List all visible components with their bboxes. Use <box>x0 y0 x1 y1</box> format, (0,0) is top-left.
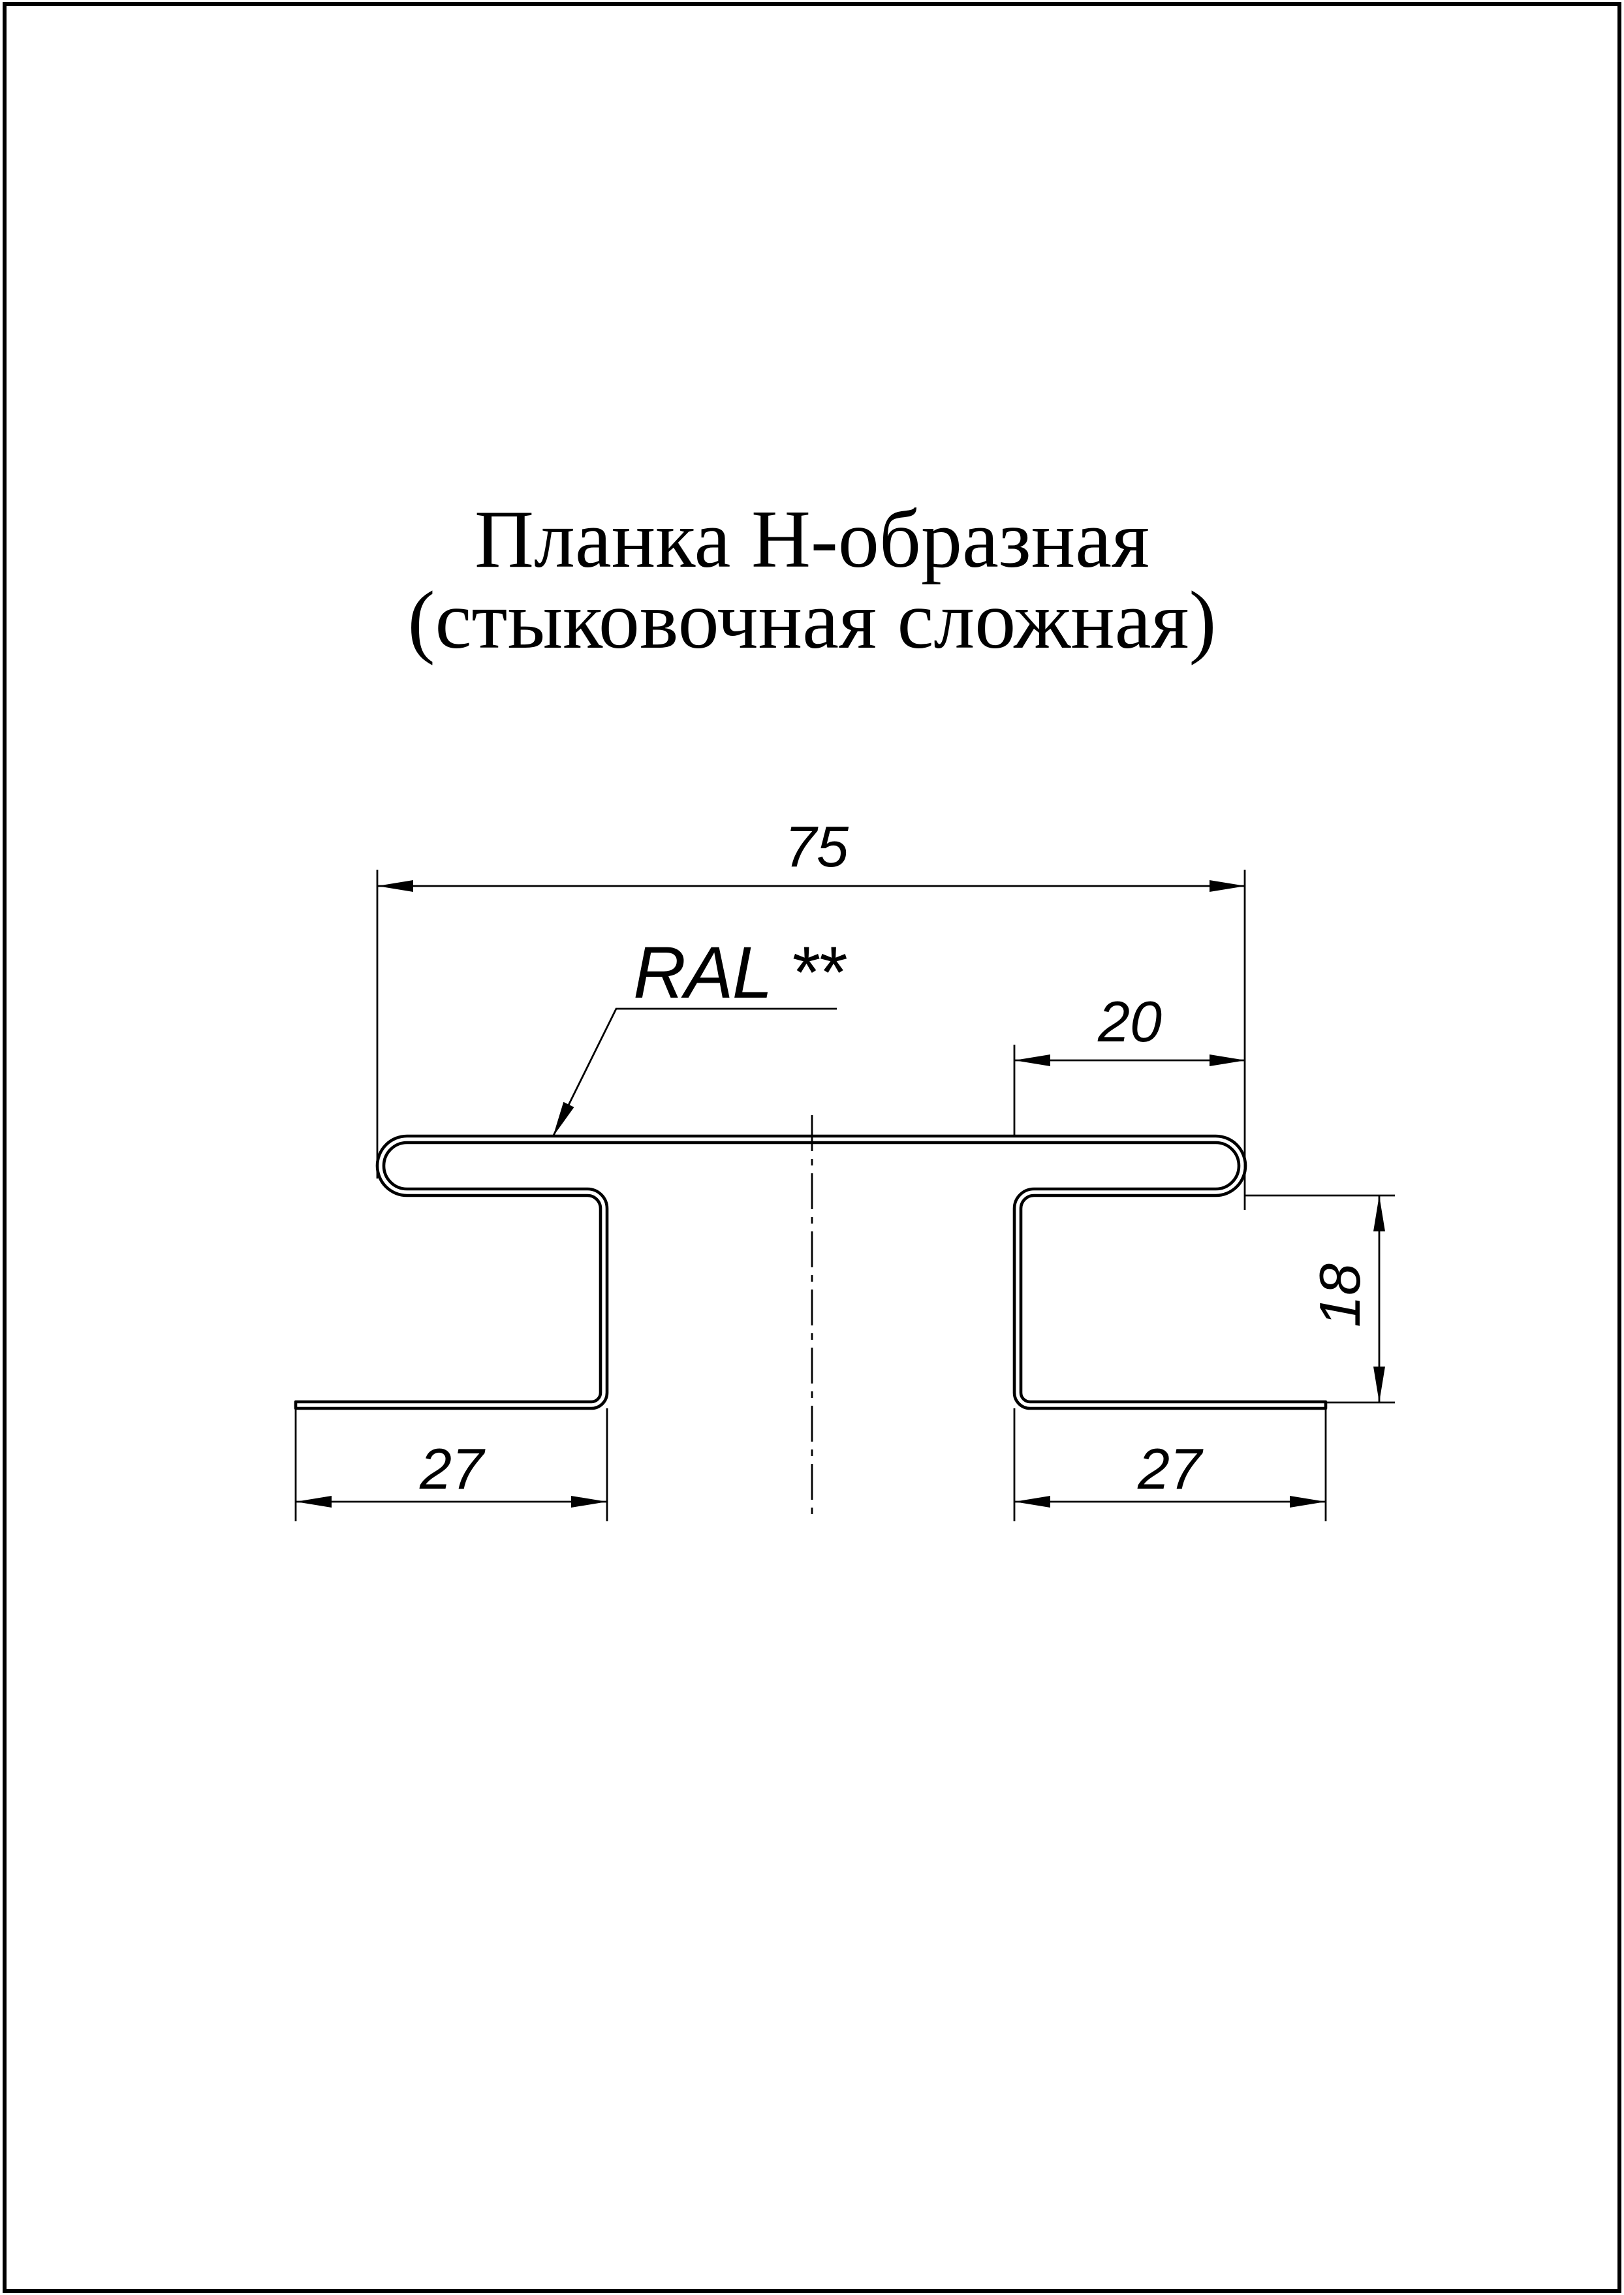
dim-18-value: 18 <box>1307 1263 1372 1327</box>
dim-left-foot-27: 27 <box>296 1408 607 1521</box>
drawing-page: Планка Н-образная (стыковочная сложная) … <box>0 0 1624 2295</box>
dim-27r-arrow-right <box>1290 1496 1326 1508</box>
dim-right-foot-27: 27 <box>1014 1408 1326 1521</box>
dim-20-value: 20 <box>1097 989 1162 1054</box>
dim-75-arrow-left <box>377 880 413 892</box>
dim-20-arrow-right <box>1210 1054 1245 1066</box>
dim-18-arrow-top <box>1373 1195 1385 1231</box>
coating-leader: RAL ** <box>553 932 847 1137</box>
coating-leader-line <box>553 1009 837 1137</box>
dim-27l-arrow-left <box>296 1496 332 1508</box>
drawing-title-line1: Планка Н-образная <box>475 494 1149 585</box>
dim-right-overhang-20: 20 <box>1014 989 1245 1135</box>
dim-75-arrow-right <box>1210 880 1245 892</box>
coating-label: RAL ** <box>633 932 847 1013</box>
dim-27r-value: 27 <box>1137 1436 1204 1501</box>
dim-20-arrow-left <box>1014 1054 1050 1066</box>
dim-27r-arrow-left <box>1014 1496 1050 1508</box>
drawing-title-line2: (стыковочная сложная) <box>408 575 1217 666</box>
h-profile-outline <box>296 1136 1326 1408</box>
coating-leader-arrow <box>553 1102 574 1137</box>
dim-leg-height-18: 18 <box>1245 1195 1395 1402</box>
dim-27l-arrow-right <box>571 1496 607 1508</box>
drawing-canvas: Планка Н-образная (стыковочная сложная) … <box>0 0 1624 2295</box>
dim-75-value: 75 <box>785 814 849 879</box>
dim-18-arrow-bottom <box>1373 1367 1385 1402</box>
dim-27l-value: 27 <box>419 1436 486 1501</box>
